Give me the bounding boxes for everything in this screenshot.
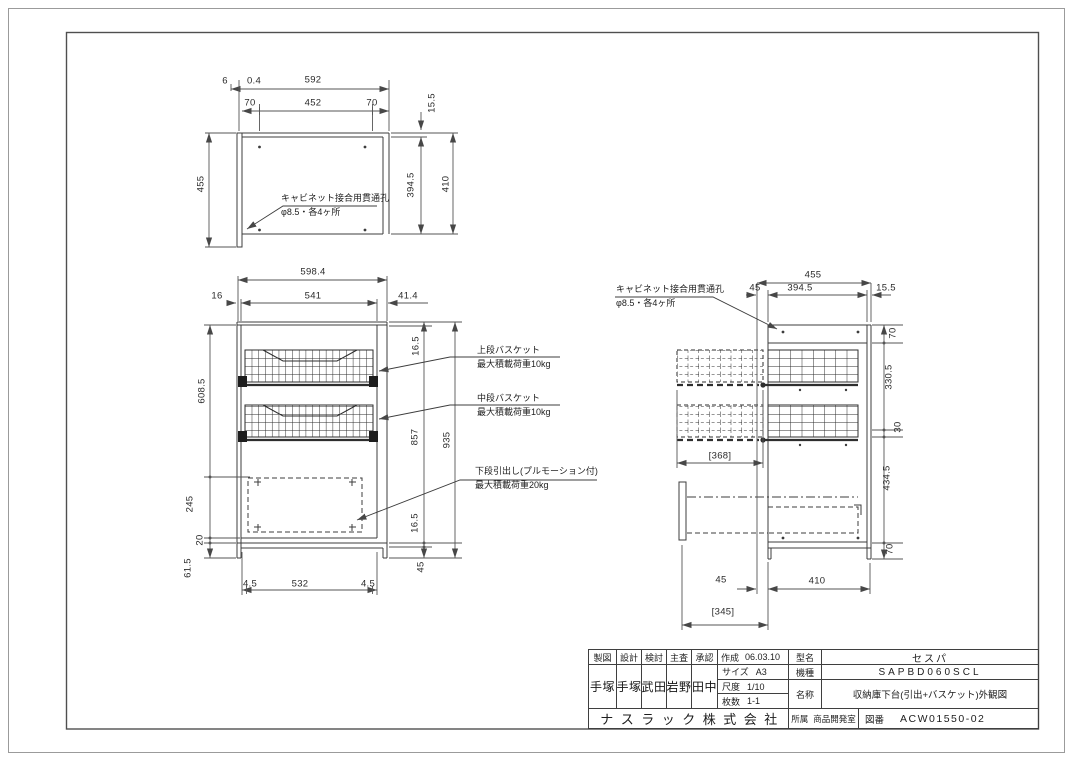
dimension-label: 434.5: [882, 465, 893, 490]
scale-value: 1/10: [747, 682, 765, 692]
product-code-value: SAPBD060SCL: [822, 665, 1038, 679]
created-cell: 作成 06.03.10: [718, 650, 789, 664]
dimension-label: 4.5: [243, 579, 257, 590]
title-block: 製図 設計 検討 主査 承認 作成 06.03.10 型名 セスパ 手塚 手塚 …: [588, 649, 1039, 729]
dimension-label: 70: [885, 543, 896, 554]
dimension-label: 45: [416, 561, 427, 572]
dimension-label: 15.5: [876, 283, 896, 294]
dimension-label: 45: [715, 575, 726, 586]
drawing-number-cell: 図番 ACW01550-02: [859, 709, 1038, 728]
dimension-label: 394.5: [406, 172, 417, 197]
approval-stamp: 田中: [692, 665, 718, 708]
drawing-name-label: 名称: [789, 680, 822, 708]
callout-note: キャビネット接合用貫通孔φ8.5・各4ヶ所: [616, 283, 724, 310]
sheet-border-frames: [9, 9, 1065, 753]
callout-note-line: 中段バスケット: [477, 392, 551, 406]
dimension-label: 598.4: [300, 267, 325, 278]
dimension-label: 394.5: [787, 283, 812, 294]
dimension-label: 41.4: [398, 291, 418, 302]
callout-note: キャビネット接合用貫通孔φ8.5・各4ヶ所: [281, 192, 389, 219]
sheets-row: 枚数 1-1: [718, 694, 788, 708]
dimension-label: 16.5: [411, 336, 422, 356]
middle-basket-side-mesh: [768, 405, 858, 437]
company-name: ナスラック株式会社: [589, 709, 789, 728]
department-cell: 所属 商品開発室: [789, 709, 859, 728]
dimension-label: 410: [441, 176, 452, 193]
department-value: 商品開発室: [813, 713, 856, 725]
callout-note-line: 最大積載荷重10kg: [477, 358, 551, 372]
title-block-middle-row: 手塚 手塚 武田 岩野 田中 サイズ A3 尺度 1/10 枚数 1-1 機種 …: [589, 665, 1038, 709]
sheets-value: 1-1: [747, 696, 760, 706]
upper-basket-side-mesh: [768, 350, 858, 382]
callout-note-line: 下段引出し(プルモーション付): [475, 465, 598, 479]
drawing-name-row: 名称 収納庫下台(引出+バスケット)外観図: [789, 680, 1038, 708]
model-value: セスパ: [822, 650, 1038, 664]
dimension-label: 45: [749, 283, 760, 294]
dimension-label: 70: [366, 98, 377, 109]
format-scale-column: サイズ A3 尺度 1/10 枚数 1-1: [718, 665, 789, 708]
department-label: 所属: [791, 713, 808, 725]
dimension-label: 15.5: [427, 93, 438, 113]
upper-basket-mesh: [245, 350, 373, 382]
created-label: 作成: [721, 651, 739, 664]
dimension-label: 532: [292, 579, 309, 590]
approval-header-chief: 主査: [667, 650, 692, 664]
scale-row: 尺度 1/10: [718, 680, 788, 695]
side-view-geometry: [677, 325, 871, 559]
middle-basket-mesh: [245, 405, 373, 437]
callout-note-line: 最大積載荷重20kg: [475, 479, 598, 493]
dimension-label: 4.5: [361, 579, 375, 590]
dimension-label: 410: [809, 576, 826, 587]
middle-basket-extended-mesh: [677, 405, 763, 437]
callout-note-line: 最大積載荷重10kg: [477, 406, 551, 420]
dimension-label: 20: [195, 534, 206, 545]
approval-header-approved: 承認: [692, 650, 718, 664]
approval-stamp: 岩野: [667, 665, 692, 708]
scale-label: 尺度: [722, 680, 740, 693]
dimension-label: 70: [888, 327, 899, 338]
dimension-label: 455: [805, 270, 822, 281]
dimension-label: 452: [305, 98, 322, 109]
callout-note: 上段バスケット最大積載荷重10kg: [477, 344, 551, 371]
title-block-header-row: 製図 設計 検討 主査 承認 作成 06.03.10 型名 セスパ: [589, 650, 1038, 665]
paper-size-row: サイズ A3: [718, 665, 788, 680]
created-date: 06.03.10: [745, 652, 780, 662]
callout-note-line: φ8.5・各4ヶ所: [281, 206, 389, 220]
front-view-geometry: [237, 322, 387, 558]
dimension-label: 30: [893, 421, 904, 432]
approval-header-drafted: 製図: [589, 650, 617, 664]
callout-note-line: キャビネット接合用貫通孔: [616, 283, 724, 297]
dimension-label: [345]: [712, 607, 735, 618]
callout-note: 中段バスケット最大積載荷重10kg: [477, 392, 551, 419]
dimension-label: 70: [244, 98, 255, 109]
drawing-number-label: 図番: [865, 712, 884, 726]
dimension-label: 16: [211, 291, 222, 302]
size-value: A3: [756, 667, 767, 677]
dimension-label: 592: [305, 75, 322, 86]
title-block-bottom-row: ナスラック株式会社 所属 商品開発室 図番 ACW01550-02: [589, 709, 1038, 728]
approval-stamp: 手塚: [617, 665, 642, 708]
approval-header-designed: 設計: [617, 650, 642, 664]
drawing-number-value: ACW01550-02: [900, 713, 985, 725]
model-label: 型名: [789, 650, 822, 664]
top-view-dimension-lines: [205, 80, 458, 247]
drawer-front-panel: [679, 482, 686, 540]
callout-note-line: 上段バスケット: [477, 344, 551, 358]
upper-basket-extended-mesh: [677, 350, 763, 382]
dimension-label: 61.5: [183, 558, 194, 578]
size-label: サイズ: [722, 665, 749, 678]
dimension-label: 6: [222, 76, 228, 87]
dimension-label: 0.4: [247, 76, 261, 87]
dimension-label: 541: [305, 291, 322, 302]
dimension-label: 608.5: [197, 378, 208, 403]
product-code-label: 機種: [789, 665, 822, 679]
callout-note: 下段引出し(プルモーション付)最大積載荷重20kg: [475, 465, 598, 492]
drawer-closed-outline: [768, 507, 858, 533]
dimension-label: 330.5: [884, 364, 895, 389]
approval-stamp: 手塚: [589, 665, 617, 708]
product-code-row: 機種 SAPBD060SCL: [789, 665, 1038, 680]
dimension-label: 935: [442, 432, 453, 449]
callout-note-line: φ8.5・各4ヶ所: [616, 297, 724, 311]
sheets-label: 枚数: [722, 695, 740, 708]
dimension-label: 16.5: [410, 513, 421, 533]
dimension-label: [368]: [709, 451, 732, 462]
approval-stamp: 武田: [642, 665, 667, 708]
drawer-hidden-outline: [248, 478, 362, 532]
callout-note-line: キャビネット接合用貫通孔: [281, 192, 389, 206]
dimension-label: 245: [185, 496, 196, 513]
dimension-label: 455: [196, 176, 207, 193]
dimension-label: 857: [410, 429, 421, 446]
drawing-name-value: 収納庫下台(引出+バスケット)外観図: [822, 680, 1038, 708]
drawing-sheet: 60.4592704527045515.5394.5410キャビネット接合用貫通…: [0, 0, 1080, 764]
approval-header-reviewed: 検討: [642, 650, 667, 664]
name-column: 機種 SAPBD060SCL 名称 収納庫下台(引出+バスケット)外観図: [789, 665, 1038, 708]
top-view-geometry: [237, 133, 389, 247]
